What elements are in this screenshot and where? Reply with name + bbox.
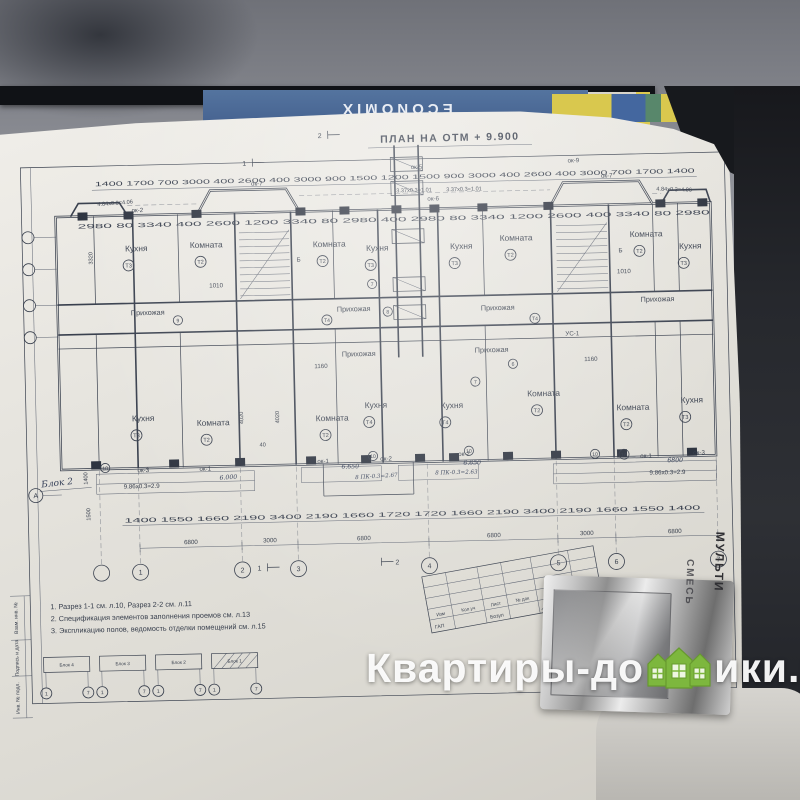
photo-of-floor-plan: ECONOMIX ПЛАН НА ОТМ + 9.900 [0, 0, 800, 800]
foil-text-smes: СМЕСЬ [682, 559, 694, 606]
foil-text-multi: МУЛЬТИ [712, 532, 728, 593]
watermark-right-text: ики.рф [714, 645, 800, 692]
watermark-left-text: Квартиры-до [366, 645, 644, 692]
houses-icon [646, 644, 712, 692]
watermark: Квартиры-до ики.рф [366, 644, 800, 692]
